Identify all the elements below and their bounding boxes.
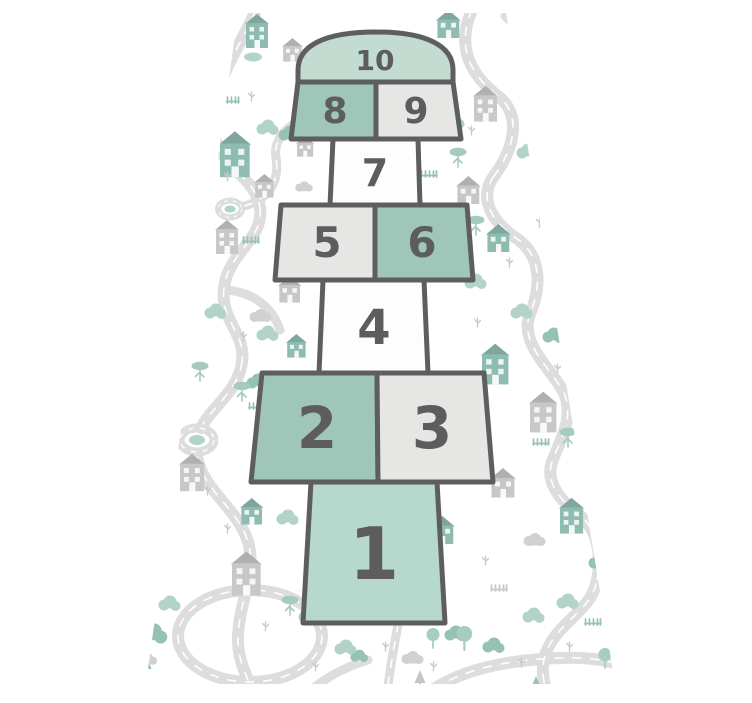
cell-number-7: 7	[362, 151, 388, 195]
tree-icon	[193, 112, 215, 128]
grass-icon	[589, 514, 595, 523]
cell-number-1: 1	[349, 512, 399, 596]
tree-icon	[583, 224, 605, 240]
cell-number-3: 3	[412, 394, 452, 462]
cell-number-10: 10	[356, 44, 395, 77]
cell-number-8: 8	[322, 91, 347, 132]
cell-number-2: 2	[297, 394, 337, 462]
pond-icon	[244, 53, 262, 62]
road	[505, 16, 548, 40]
cell-number-9: 9	[403, 91, 428, 132]
hopscotch-mat-illustration: 1 2 3 4 5 6 7 8 9 10	[0, 0, 752, 703]
grass-icon	[477, 686, 483, 695]
tree-icon	[585, 402, 607, 418]
road	[145, 438, 173, 460]
cell-number-4: 4	[357, 300, 390, 356]
cell-number-6: 6	[407, 218, 436, 267]
hopscotch-mat-photo: 1 2 3 4 5 6 7 8 9 10	[0, 0, 752, 703]
cell-number-5: 5	[312, 218, 341, 267]
